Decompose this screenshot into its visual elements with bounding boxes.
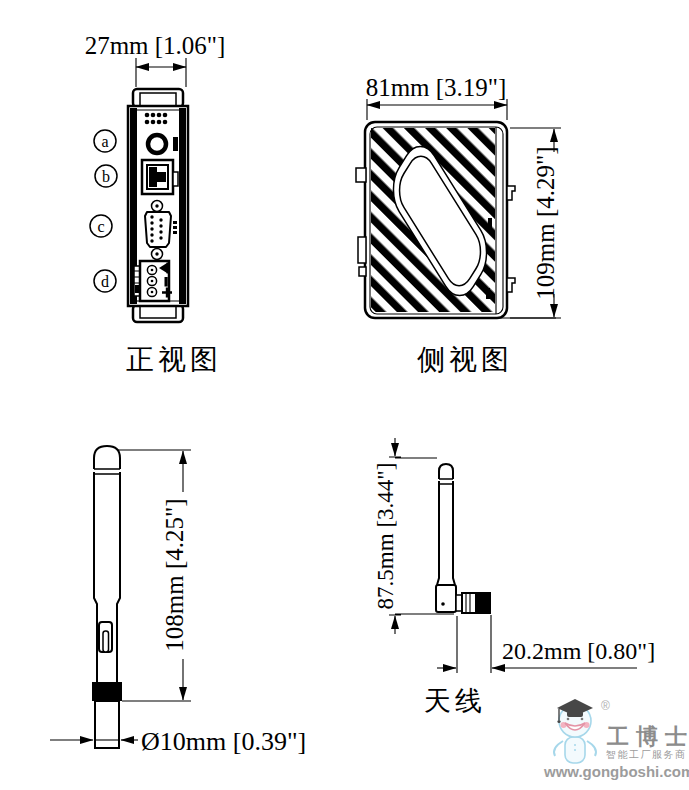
side-device xyxy=(356,122,556,318)
left-protrusion-small xyxy=(359,267,366,276)
antenna-connector-port xyxy=(148,135,178,153)
port-label-a: a xyxy=(94,130,116,152)
left-protrusion-top xyxy=(356,168,366,182)
side-view: 81mm [3.19"] 109mm [4 xyxy=(356,74,561,375)
power-terminal-block xyxy=(134,261,172,301)
technical-drawing-page: 27mm [1.06"] xyxy=(0,0,689,790)
watermark: ® 工博士 智能工厂服务商 www.gongboshi.com xyxy=(543,699,689,780)
side-slot-upper xyxy=(488,218,492,229)
port-label-c-text: c xyxy=(97,218,104,235)
side-view-caption: 侧视图 xyxy=(417,344,513,375)
drawing-svg: 27mm [1.06"] xyxy=(0,0,689,790)
side-height-dimension-text: 109mm [4.29"] xyxy=(532,146,559,299)
side-slot-lower xyxy=(486,288,490,299)
antenna-bent-length-dimension: 20.2mm [0.80"] xyxy=(437,615,655,673)
port-label-d: d xyxy=(94,270,116,292)
front-width-dimension: 27mm [1.06"] xyxy=(85,32,226,87)
left-protrusion-db9 xyxy=(358,237,366,263)
port-label-b-text: b xyxy=(102,168,110,185)
front-device xyxy=(128,89,188,322)
antenna-bent-hinge xyxy=(436,585,456,612)
antenna-base xyxy=(95,701,119,748)
din-clip-lower xyxy=(507,278,515,292)
antenna-caption: 天线 xyxy=(424,686,486,716)
antenna-bent-length-dimension-text: 20.2mm [0.80"] xyxy=(502,638,655,664)
side-width-dimension: 81mm [3.19"] xyxy=(366,74,507,120)
port-label-b: b xyxy=(95,165,117,187)
side-width-dimension-text: 81mm [3.19"] xyxy=(366,74,507,101)
port-label-a-text: a xyxy=(101,133,108,150)
connector-nut xyxy=(476,592,491,614)
front-extension-lines xyxy=(136,58,186,87)
antenna-diameter-dimension-text: Ø10mm [0.39"] xyxy=(141,727,306,756)
antenna-bent-body xyxy=(436,464,491,614)
minus-icon xyxy=(165,277,168,287)
front-view-caption: 正视图 xyxy=(126,344,222,375)
connector-ridged xyxy=(462,593,476,613)
antenna-bent-height-dimension-text: 87.5mm [3.44"] xyxy=(373,463,398,610)
front-view: 27mm [1.06"] xyxy=(85,32,226,375)
db9-side-marks xyxy=(173,221,177,234)
antenna-straight-body xyxy=(92,446,122,748)
ethernet-port xyxy=(142,160,178,194)
side-top-extension-lines xyxy=(367,99,507,120)
front-width-dimension-text: 27mm [1.06"] xyxy=(85,32,226,59)
registered-mark: ® xyxy=(601,699,610,713)
antenna-height-dimension-text: 108mm [4.25"] xyxy=(161,498,188,651)
watermark-website: www.gongboshi.com xyxy=(543,763,689,780)
mascot-logo xyxy=(554,699,596,763)
antenna-black-band xyxy=(92,682,122,701)
watermark-tagline: 智能工厂服务商 xyxy=(606,749,687,760)
port-label-c: c xyxy=(90,215,112,237)
antenna-bent: 87.5mm [3.44"] 20.2mm [0.80"] 天线 xyxy=(373,438,655,716)
device-right-wall xyxy=(179,108,186,304)
antenna-diameter-dimension: Ø10mm [0.39"] xyxy=(50,727,306,756)
port-label-d-text: d xyxy=(101,273,109,290)
din-clip-upper xyxy=(507,186,515,200)
side-height-dimension: 109mm [4.29"] xyxy=(510,128,561,318)
antenna-straight: 108mm [4.25"] Ø10mm [0.39"] xyxy=(50,446,306,756)
watermark-brand: 工博士 xyxy=(606,724,689,749)
antenna-straight-height-dimension: 108mm [4.25"] xyxy=(118,450,191,701)
